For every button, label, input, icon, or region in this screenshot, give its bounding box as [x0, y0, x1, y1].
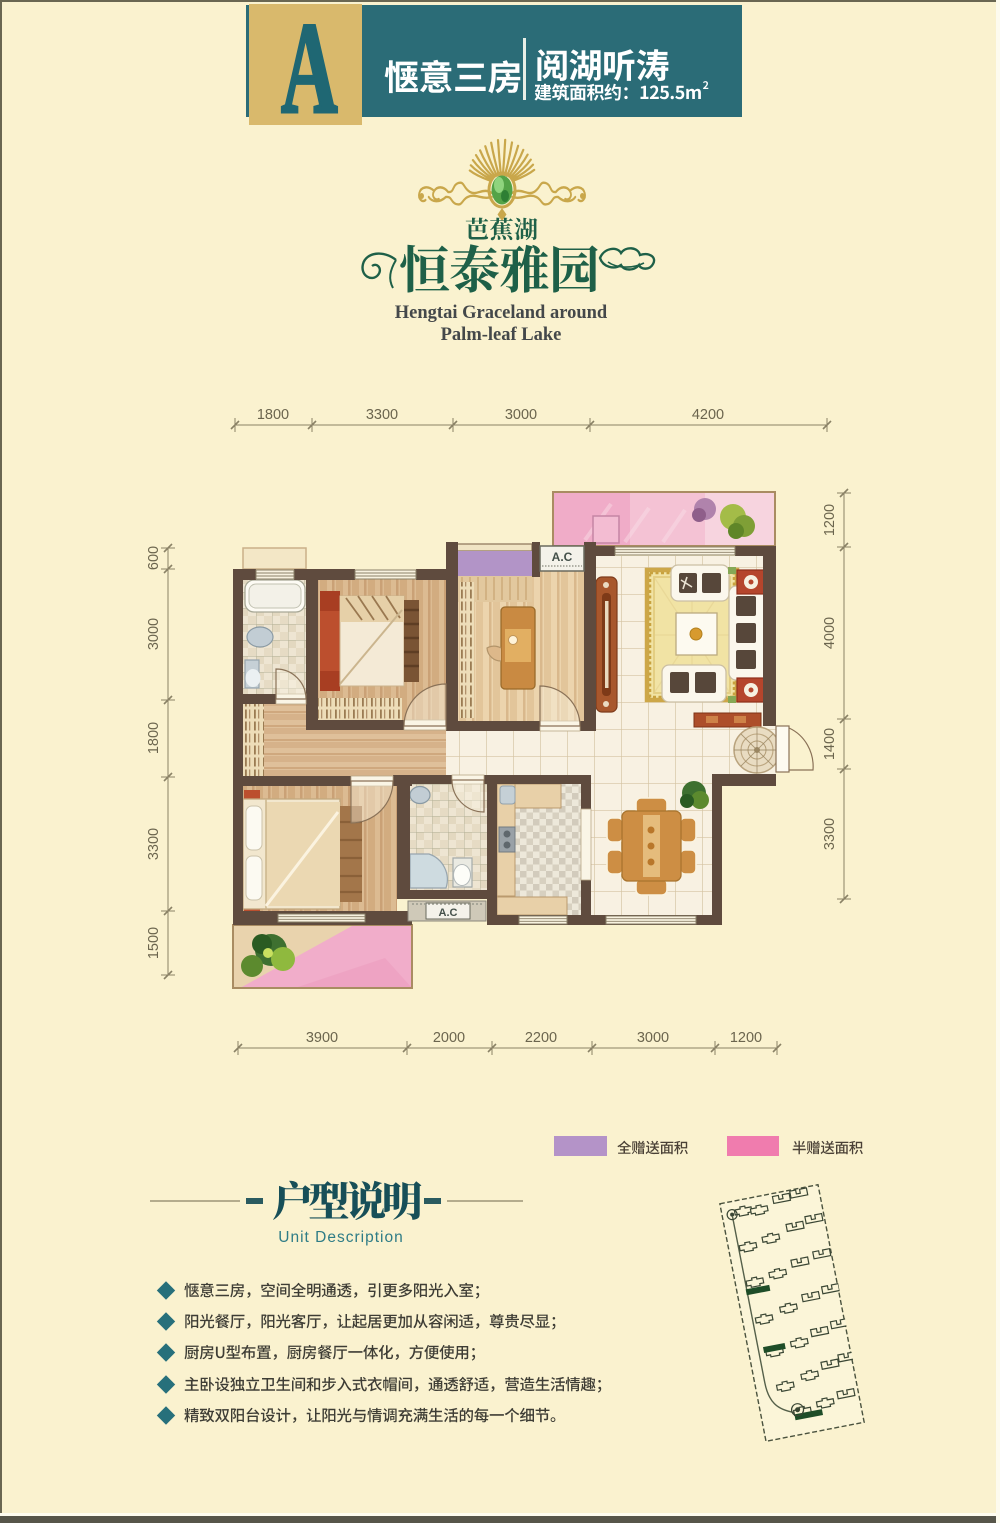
svg-text:3300: 3300: [366, 407, 398, 423]
svg-text:4200: 4200: [692, 407, 724, 423]
svg-text:600: 600: [146, 546, 162, 570]
svg-text:Hengtai Graceland around: Hengtai Graceland around: [395, 303, 608, 323]
svg-text:3300: 3300: [822, 818, 838, 850]
svg-text:Palm-leaf Lake: Palm-leaf Lake: [441, 325, 562, 345]
svg-text:1400: 1400: [822, 728, 838, 760]
svg-text:3300: 3300: [146, 828, 162, 860]
svg-text:1200: 1200: [822, 504, 838, 536]
svg-text:A.C: A.C: [552, 550, 573, 564]
svg-text:2000: 2000: [433, 1030, 465, 1046]
svg-text:3000: 3000: [505, 407, 537, 423]
svg-text:1500: 1500: [146, 927, 162, 959]
svg-text:A.C: A.C: [439, 907, 458, 919]
svg-text:Unit Description: Unit Description: [278, 1229, 403, 1246]
svg-text:4000: 4000: [822, 617, 838, 649]
svg-text:3900: 3900: [306, 1030, 338, 1046]
svg-text:1800: 1800: [146, 722, 162, 754]
svg-text:2200: 2200: [525, 1030, 557, 1046]
svg-text:3000: 3000: [637, 1030, 669, 1046]
svg-text:1800: 1800: [257, 407, 289, 423]
svg-text:1200: 1200: [730, 1030, 762, 1046]
svg-text:3000: 3000: [146, 618, 162, 650]
